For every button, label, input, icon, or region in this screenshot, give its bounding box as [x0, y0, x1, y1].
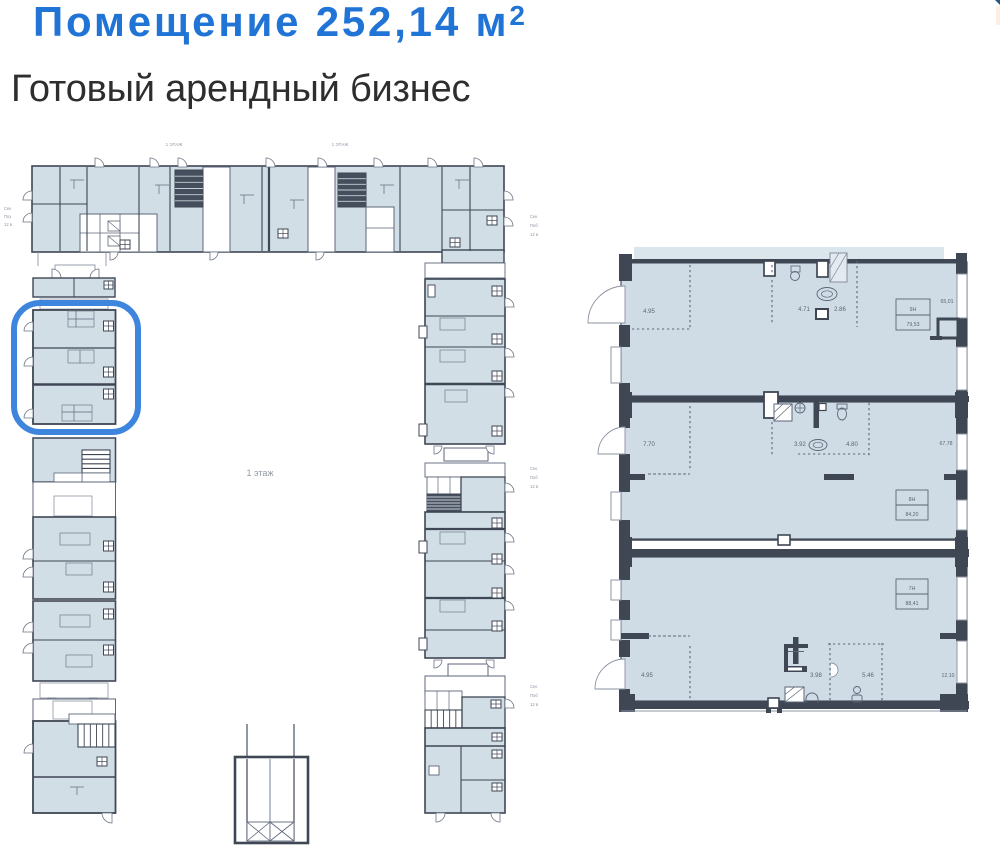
- svg-text:1 ЭТАЖ: 1 ЭТАЖ: [332, 142, 350, 147]
- svg-text:Сек: Сек: [530, 684, 537, 689]
- svg-text:88,41: 88,41: [906, 601, 919, 607]
- svg-text:4.95: 4.95: [641, 673, 653, 679]
- svg-text:12 в: 12 в: [530, 702, 539, 707]
- svg-text:3.92: 3.92: [794, 442, 806, 448]
- svg-text:65,01: 65,01: [941, 299, 954, 305]
- svg-text:12 в: 12 в: [530, 232, 539, 237]
- svg-text:Поб: Поб: [530, 223, 538, 228]
- svg-text:Поб: Поб: [530, 475, 538, 480]
- svg-text:9Н: 9Н: [910, 307, 917, 313]
- svg-text:Поз: Поз: [4, 214, 11, 219]
- svg-text:Сек: Сек: [530, 466, 537, 471]
- svg-text:4.71: 4.71: [798, 307, 810, 313]
- svg-text:79,53: 79,53: [907, 322, 920, 328]
- svg-text:7Н: 7Н: [909, 586, 916, 592]
- svg-text:4.95: 4.95: [643, 309, 655, 315]
- svg-text:7.70: 7.70: [643, 442, 655, 448]
- svg-text:1 этаж: 1 этаж: [247, 468, 274, 478]
- svg-text:Сек: Сек: [4, 206, 11, 211]
- svg-text:8Н: 8Н: [909, 497, 916, 503]
- svg-text:1 ЭТАЖ: 1 ЭТАЖ: [166, 142, 184, 147]
- svg-text:4.80: 4.80: [846, 442, 858, 448]
- svg-text:2.86: 2.86: [834, 307, 846, 313]
- svg-text:12.10: 12.10: [942, 673, 955, 679]
- svg-text:12 в: 12 в: [4, 222, 13, 227]
- svg-text:67,78: 67,78: [940, 441, 953, 447]
- svg-text:Сек: Сек: [530, 214, 537, 219]
- svg-text:3.98: 3.98: [810, 673, 822, 679]
- svg-text:12 в: 12 в: [530, 484, 539, 489]
- svg-text:Поб: Поб: [530, 693, 538, 698]
- svg-text:84,20: 84,20: [906, 512, 919, 518]
- svg-text:5.46: 5.46: [862, 673, 874, 679]
